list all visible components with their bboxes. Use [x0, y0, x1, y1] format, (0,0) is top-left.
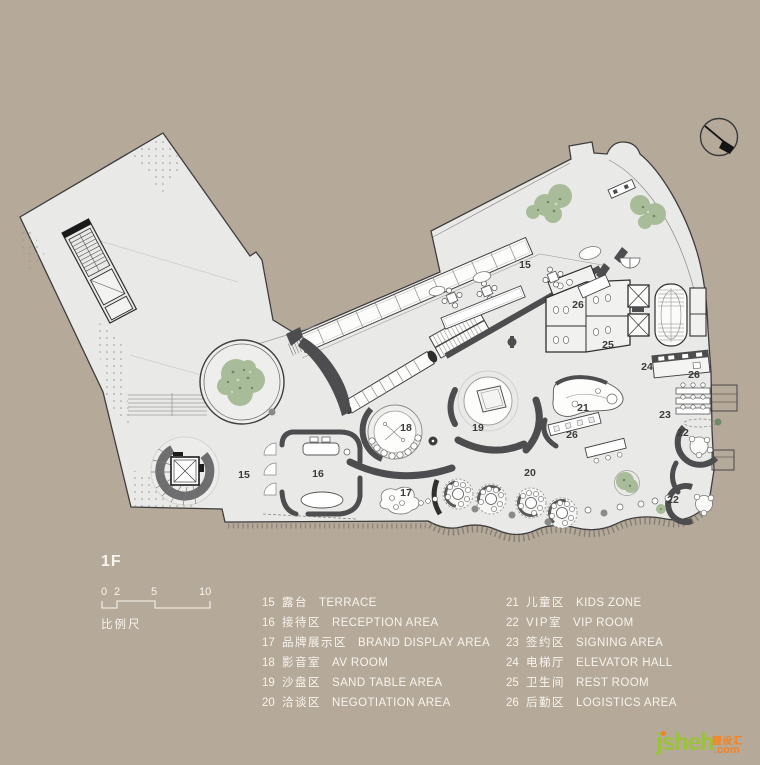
scale-unit-label: 比例尺: [101, 616, 231, 632]
legend-item-negotiation: 20 洽谈区 NEGOTIATION AREA: [262, 693, 490, 713]
legend-num: 25: [506, 673, 526, 693]
legend-num: 16: [262, 613, 282, 633]
room-label: 19: [472, 422, 484, 434]
legend-item-reception: 16 接待区 RECEPTION AREA: [262, 613, 490, 633]
legend-zh: 后勤区: [526, 693, 565, 713]
room-label: 22: [667, 494, 679, 506]
north-arrow-icon: [701, 119, 738, 156]
legend-zh: VIP室: [526, 613, 562, 633]
tree-planter: [200, 340, 284, 424]
scale-tick: 5: [151, 586, 157, 598]
room-label: 23: [659, 409, 671, 421]
legend-en: VIP ROOM: [573, 613, 634, 633]
watermark-tld: .com: [714, 744, 740, 756]
room-label: 22: [677, 427, 689, 439]
legend-zh: 洽谈区: [282, 693, 321, 713]
room-label: 25: [602, 339, 614, 351]
legend-item-brand-display: 17 品牌展示区 BRAND DISPLAY AREA: [262, 633, 490, 653]
legend-zh: 影音室: [282, 653, 321, 673]
legend-item-kids-zone: 21 儿童区 KIDS ZONE: [506, 593, 677, 613]
legend-num: 24: [506, 653, 526, 673]
legend-en: ELEVATOR HALL: [576, 653, 673, 673]
room-label: 16: [312, 468, 324, 480]
legend-num: 17: [262, 633, 282, 653]
room-label: 26: [688, 369, 700, 381]
legend-num: 21: [506, 593, 526, 613]
room-label: 15: [238, 469, 250, 481]
watermark-dot-icon: [661, 731, 666, 736]
legend-num: 15: [262, 593, 282, 613]
legend-en: SAND TABLE AREA: [332, 673, 442, 693]
scale-ticks: 0 2 5 10: [101, 586, 231, 599]
legend-zh: 品牌展示区: [282, 633, 347, 653]
floor-title: 1F: [101, 553, 122, 571]
room-label: 24: [641, 361, 653, 373]
spiral-stair: [151, 437, 219, 505]
legend-en: NEGOTIATION AREA: [332, 693, 451, 713]
legend-item-terrace: 15 露台 TERRACE: [262, 593, 490, 613]
scale-tick: 0: [101, 586, 107, 598]
legend-num: 26: [506, 693, 526, 713]
legend-zh: 沙盘区: [282, 673, 321, 693]
legend-num: 20: [262, 693, 282, 713]
room-label: 26: [572, 299, 584, 311]
legend-right-column: 21 儿童区 KIDS ZONE 22 VIP室 VIP ROOM 23 签约区…: [506, 593, 677, 713]
legend-item-sand-table: 19 沙盘区 SAND TABLE AREA: [262, 673, 490, 693]
scale-tick: 2: [114, 586, 120, 598]
legend-zh: 露台: [282, 593, 308, 613]
legend-en: REST ROOM: [576, 673, 649, 693]
legend-zh: 电梯厅: [526, 653, 565, 673]
scale-bar: 0 2 5 10 比例尺: [101, 586, 231, 632]
room-label: 21: [577, 402, 589, 414]
legend-en: KIDS ZONE: [576, 593, 642, 613]
legend-en: BRAND DISPLAY AREA: [358, 633, 490, 653]
legend-item-rest-room: 25 卫生间 REST ROOM: [506, 673, 677, 693]
legend-zh: 儿童区: [526, 593, 565, 613]
legend-en: AV ROOM: [332, 653, 388, 673]
room-label: 15: [519, 259, 531, 271]
scale-bar-line: [101, 599, 213, 610]
legend-en: LOGISTICS AREA: [576, 693, 677, 713]
room-label: 26: [566, 429, 578, 441]
legend-num: 22: [506, 613, 526, 633]
page: 15 15 16 17 18 19 20 21 22 22 23 24 25 2…: [0, 0, 760, 765]
legend-item-av-room: 18 影音室 AV ROOM: [262, 653, 490, 673]
legend-num: 19: [262, 673, 282, 693]
scale-tick: 10: [199, 586, 211, 598]
legend-zh: 签约区: [526, 633, 565, 653]
legend-num: 18: [262, 653, 282, 673]
legend-en: TERRACE: [319, 593, 377, 613]
legend-item-signing: 23 签约区 SIGNING AREA: [506, 633, 677, 653]
room-label: 18: [400, 422, 412, 434]
watermark: jsheh 狸设汇 .com: [654, 727, 760, 763]
legend-en: SIGNING AREA: [576, 633, 663, 653]
legend-item-logistics: 26 后勤区 LOGISTICS AREA: [506, 693, 677, 713]
legend-zh: 接待区: [282, 613, 321, 633]
legend-zh: 卫生间: [526, 673, 565, 693]
room-sand-table: [458, 371, 518, 431]
legend-item-elevator-hall: 24 电梯厅 ELEVATOR HALL: [506, 653, 677, 673]
room-label: 17: [400, 487, 412, 499]
legend-left-column: 15 露台 TERRACE 16 接待区 RECEPTION AREA 17 品…: [262, 593, 490, 713]
legend-en: RECEPTION AREA: [332, 613, 439, 633]
room-label: 20: [524, 467, 536, 479]
legend-num: 23: [506, 633, 526, 653]
legend-item-vip-room: 22 VIP室 VIP ROOM: [506, 613, 677, 633]
